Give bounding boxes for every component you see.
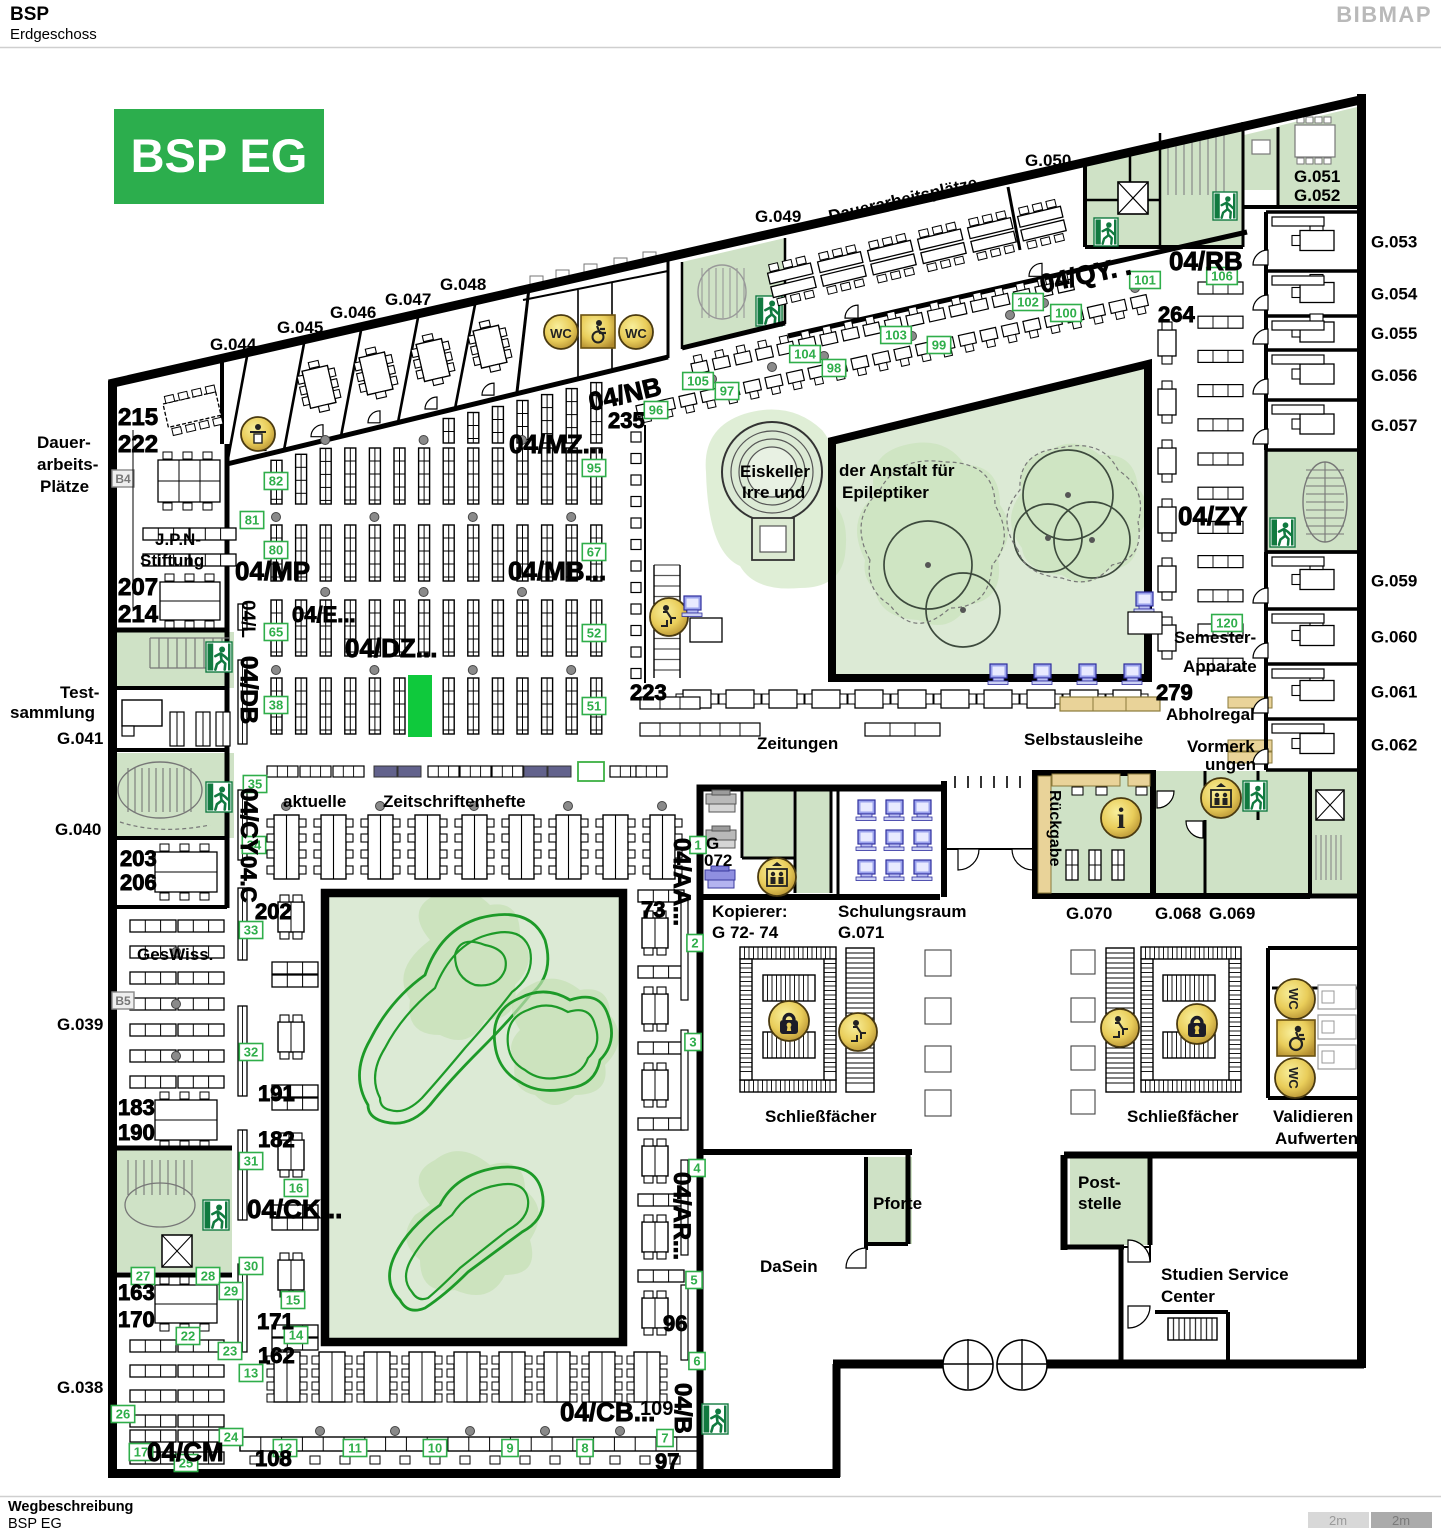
svg-text:103: 103 [885,328,907,343]
svg-text:65: 65 [269,625,283,640]
svg-text:264: 264 [1158,302,1195,327]
svg-text:04/B: 04/B [669,1383,696,1434]
svg-text:202: 202 [255,899,292,924]
svg-text:i: i [1117,802,1125,835]
svg-text:Selbstausleihe: Selbstausleihe [1024,730,1143,749]
svg-text:Aufwerten: Aufwerten [1275,1129,1358,1148]
svg-text:162: 162 [258,1343,295,1368]
svg-text:stelle: stelle [1078,1194,1121,1213]
svg-text:Semester-: Semester- [1174,628,1256,647]
svg-text:Irre und: Irre und [742,483,805,502]
svg-text:04/MP: 04/MP [235,556,310,586]
svg-text:04/MB...: 04/MB... [508,556,606,586]
svg-text:215: 215 [118,404,158,431]
svg-text:2m: 2m [1392,1513,1410,1528]
svg-text:Plätze: Plätze [40,477,89,496]
svg-text:207: 207 [118,574,158,601]
svg-text:04/AA...: 04/AA... [668,838,695,926]
svg-text:222: 222 [118,431,158,458]
svg-text:171: 171 [257,1309,294,1334]
svg-text:G 72- 74: G 72- 74 [712,923,779,942]
svg-text:Apparate: Apparate [1183,657,1257,676]
svg-text:163: 163 [118,1280,155,1305]
svg-text:28: 28 [201,1269,215,1284]
svg-text:Zeitungen: Zeitungen [757,734,838,753]
svg-text:11: 11 [348,1441,362,1456]
svg-text:108: 108 [255,1446,292,1471]
svg-text:6: 6 [693,1354,700,1369]
svg-text:04/CY: 04/CY [235,788,262,855]
svg-text:26: 26 [116,1407,130,1422]
svg-text:22: 22 [181,1329,195,1344]
svg-text:04/E...: 04/E... [292,602,356,627]
svg-text:G.050: G.050 [1025,151,1071,170]
svg-text:109: 109 [640,1398,673,1420]
svg-text:G.048: G.048 [440,275,486,294]
svg-text:95: 95 [587,461,601,476]
svg-text:04/CK...: 04/CK... [247,1194,342,1224]
svg-text:WC: WC [1286,988,1301,1010]
svg-text:WC: WC [1286,1067,1301,1089]
svg-text:51: 51 [587,699,601,714]
svg-text:Validieren: Validieren [1273,1107,1353,1126]
svg-text:15: 15 [286,1293,300,1308]
svg-text:97: 97 [655,1449,679,1474]
svg-text:8: 8 [581,1441,588,1456]
svg-text:30: 30 [244,1259,258,1274]
svg-text:Erdgeschoss: Erdgeschoss [10,26,97,43]
svg-text:5: 5 [690,1273,697,1288]
svg-text:Center: Center [1161,1287,1215,1306]
svg-text:G.049: G.049 [755,207,801,226]
svg-text:G.056: G.056 [1371,366,1417,385]
svg-text:J.P.N-: J.P.N- [155,530,201,549]
svg-text:G.069: G.069 [1209,904,1255,923]
svg-text:G.051: G.051 [1294,167,1340,186]
svg-text:04/CM: 04/CM [147,1437,224,1467]
svg-text:Dauer-: Dauer- [37,433,91,452]
svg-text:Zeitschriftenhefte: Zeitschriftenhefte [383,792,526,811]
svg-text:279: 279 [1156,680,1193,705]
svg-text:BSP EG: BSP EG [8,1516,62,1531]
svg-text:072: 072 [704,851,732,870]
svg-text:223: 223 [630,680,667,705]
svg-text:13: 13 [244,1366,258,1381]
svg-text:G.060: G.060 [1371,628,1417,647]
svg-text:Kopierer:: Kopierer: [712,902,788,921]
svg-text:BSP: BSP [10,4,49,25]
svg-text:99: 99 [932,338,946,353]
svg-text:04/DB: 04/DB [235,656,262,724]
svg-text:Post-: Post- [1078,1173,1121,1192]
svg-text:24: 24 [224,1430,239,1445]
svg-text:98: 98 [827,361,841,376]
svg-text:101: 101 [1134,273,1156,288]
svg-text:38: 38 [269,698,283,713]
svg-text:9: 9 [506,1441,513,1456]
svg-text:2: 2 [691,936,698,951]
svg-text:GesWiss.: GesWiss. [137,945,213,964]
svg-text:3: 3 [689,1035,696,1050]
svg-text:G.062: G.062 [1371,736,1417,755]
svg-text:96: 96 [663,1311,687,1336]
svg-text:Studien Service: Studien Service [1161,1265,1289,1284]
svg-text:04/ZY: 04/ZY [1178,501,1247,531]
svg-text:G.061: G.061 [1371,683,1417,702]
svg-text:82: 82 [269,474,283,489]
svg-text:04/MZ...: 04/MZ... [509,429,604,459]
svg-text:Schulungsraum: Schulungsraum [838,902,966,921]
svg-text:B4: B4 [115,472,131,486]
svg-text:WC: WC [625,326,647,341]
svg-text:Stiftung: Stiftung [140,551,204,570]
svg-text:G.053: G.053 [1371,233,1417,252]
svg-text:Abholregal: Abholregal [1166,705,1255,724]
svg-text:G.044: G.044 [210,335,257,354]
svg-text:Epileptiker: Epileptiker [842,483,929,502]
svg-text:182: 182 [258,1127,295,1152]
svg-text:aktuelle: aktuelle [283,792,346,811]
svg-text:04/L: 04/L [237,600,258,638]
svg-text:100: 100 [1055,306,1077,321]
svg-text:G.070: G.070 [1066,904,1112,923]
svg-text:Wegbeschreibung: Wegbeschreibung [8,1499,133,1515]
svg-text:183: 183 [118,1095,155,1120]
svg-text:206: 206 [120,870,157,895]
svg-text:arbeits-: arbeits- [37,455,98,474]
svg-text:G.038: G.038 [57,1378,103,1397]
svg-text:G.054: G.054 [1371,285,1418,304]
svg-text:Schließfächer: Schließfächer [765,1107,877,1126]
svg-text:G.040: G.040 [55,820,101,839]
svg-text:G.071: G.071 [838,923,884,942]
svg-text:G.052: G.052 [1294,186,1340,205]
svg-text:sammlung: sammlung [10,703,95,722]
svg-text:B5: B5 [115,994,131,1008]
svg-text:105: 105 [687,374,709,389]
svg-text:32: 32 [244,1045,258,1060]
svg-text:191: 191 [258,1081,295,1106]
svg-text:73: 73 [641,897,665,922]
svg-text:BSP EG: BSP EG [131,129,308,182]
svg-text:97: 97 [720,384,734,399]
svg-text:203: 203 [120,846,157,871]
svg-text:104: 104 [794,347,816,362]
svg-text:G.055: G.055 [1371,324,1417,343]
svg-text:DaSein: DaSein [760,1257,818,1276]
svg-text:Schließfächer: Schließfächer [1127,1107,1239,1126]
svg-text:WC: WC [550,326,572,341]
svg-text:04/AR...: 04/AR... [668,1172,695,1260]
svg-text:G.068: G.068 [1155,904,1201,923]
svg-text:G.039: G.039 [57,1015,103,1034]
svg-text:Eiskeller: Eiskeller [740,462,810,481]
svg-text:Pforte: Pforte [873,1194,922,1213]
svg-text:ungen: ungen [1205,755,1256,774]
svg-text:81: 81 [245,513,259,528]
svg-text:2m: 2m [1329,1513,1347,1528]
svg-text:214: 214 [118,601,159,628]
svg-text:04/RB: 04/RB [1169,246,1243,276]
svg-text:G.045: G.045 [277,318,323,337]
svg-text:Rückgabe: Rückgabe [1046,790,1063,867]
svg-text:Test-: Test- [60,683,99,702]
svg-text:G.057: G.057 [1371,416,1417,435]
svg-text:29: 29 [224,1284,238,1299]
svg-text:Vormerk: Vormerk [1187,737,1255,756]
svg-text:10: 10 [428,1441,442,1456]
svg-text:04.C: 04.C [236,856,261,903]
svg-text:102: 102 [1017,295,1039,310]
svg-text:7: 7 [661,1431,668,1446]
svg-text:04/DZ...: 04/DZ... [345,633,437,663]
svg-text:G.041: G.041 [57,729,103,748]
svg-text:190: 190 [118,1120,155,1145]
svg-text:52: 52 [587,626,601,641]
svg-text:BIBMAP: BIBMAP [1336,2,1432,27]
svg-text:G.059: G.059 [1371,572,1417,591]
svg-text:der Anstalt für: der Anstalt für [839,461,955,480]
svg-text:33: 33 [244,923,258,938]
svg-text:G.046: G.046 [330,303,376,322]
svg-text:23: 23 [223,1344,237,1359]
svg-text:170: 170 [118,1307,155,1332]
svg-text:31: 31 [244,1154,258,1169]
svg-text:G.047: G.047 [385,290,431,309]
svg-text:96: 96 [649,403,663,418]
